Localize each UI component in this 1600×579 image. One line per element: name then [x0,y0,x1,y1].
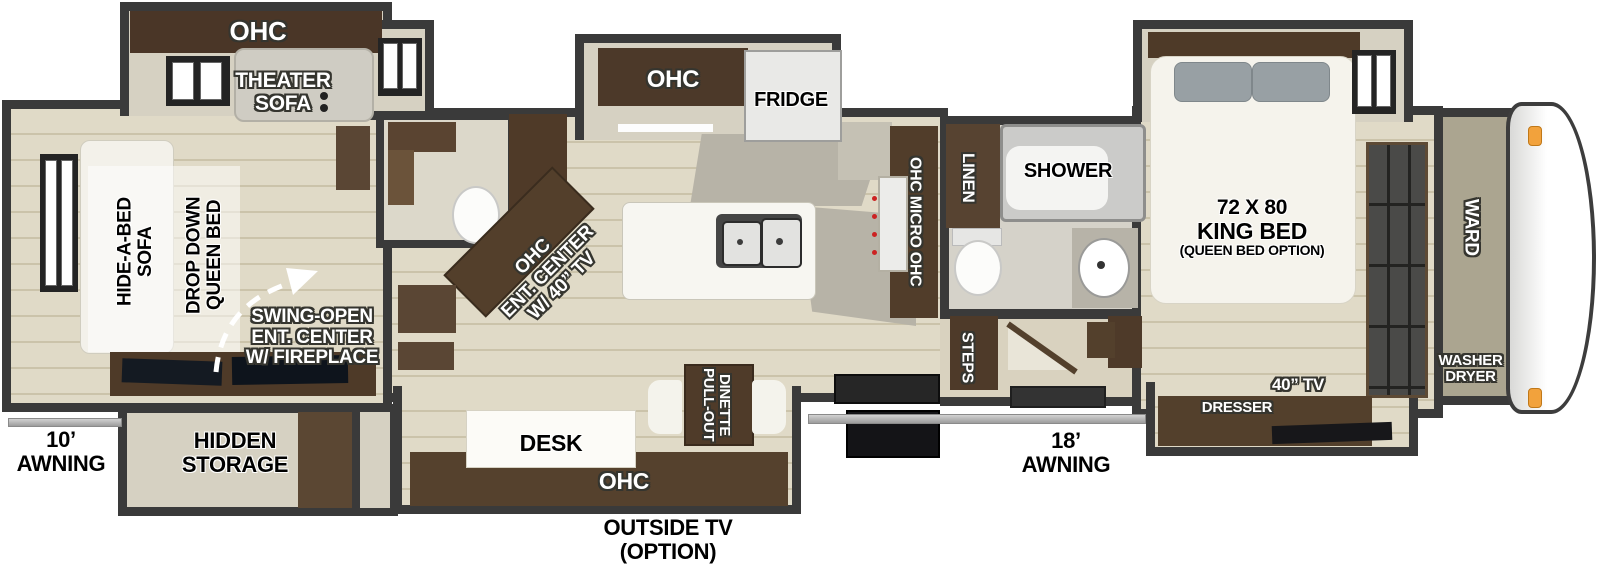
label-pantry-column: OHC MICRO OHC [901,132,929,312]
headboard [1148,32,1360,58]
awning-bar-18ft [808,414,1146,424]
toilet [954,240,1002,296]
king-bed-label-group: 72 X 80 KING BED (QUEEN BED OPTION) [1157,184,1347,270]
label-washer-dryer: WASHER DRYER [1428,350,1513,388]
mirror-closet [1366,142,1428,398]
pillow [1252,62,1330,102]
clearance-light [1528,126,1542,146]
clearance-light [1528,388,1542,408]
front-cap [1506,102,1596,414]
half-bath-window [378,38,422,96]
corner-cabinet [336,126,370,190]
pillow [1174,62,1252,102]
label-bed-type: KING BED [1197,219,1307,243]
counter-patch [838,122,892,180]
label-ohc-rear: OHC [198,16,318,46]
kitchen-side-cabinet [398,285,456,333]
label-linen: LINEN [955,130,981,225]
label-ohc-desk: OHC [564,467,684,495]
label-steps: STEPS [955,321,979,394]
label-10ft-awning: 10’ AWNING [2,426,120,478]
window-pane [172,62,194,100]
label-bed-option: (QUEEN BED OPTION) [1180,243,1325,258]
faucet-dot [776,238,783,245]
kitchen-side-cabinet [398,342,454,370]
label-shower: SHOWER [1003,159,1133,185]
range-indicator-dot [872,196,877,201]
entry-step-well [1010,386,1106,408]
half-bath-counter-side [388,150,414,205]
window-pane [383,43,398,89]
vanity-sink [1078,238,1130,298]
floorplan-canvas: OHC THEATER SOFA HIDE-A-BED SOFA DROP DO… [0,0,1600,579]
label-ohc-kitchen: OHC [613,66,733,94]
half-bath-counter [388,122,456,152]
range-indicator-dot [872,214,877,219]
rear-wall-window [40,154,78,292]
window-pane [1376,55,1391,107]
label-18ft-awning: 18’ AWNING [1001,428,1131,478]
label-fridge: FRIDGE [741,89,841,113]
nightstand [1087,322,1115,358]
label-ward: WARD [1456,180,1484,275]
faucet-dot [1097,261,1105,269]
window-pane [1357,55,1372,107]
dinette-seat [648,380,682,434]
outside-tv-compartment [834,374,940,404]
label-outside-tv: OUTSIDE TV (OPTION) [583,514,753,566]
counter-strip [618,124,713,132]
label-theater-sofa: THEATER SOFA [213,68,353,118]
bedroom-slide-window [1352,50,1396,114]
label-swing-open: SWING-OPEN ENT. CENTER W/ FIREPLACE [222,305,402,371]
rear-corridor-notch [352,404,398,516]
window-pane [402,43,417,89]
range-indicator-dot [872,250,877,255]
faucet-dot [737,239,743,245]
label-desk: DESK [496,429,606,457]
window-pane [45,160,57,286]
range-indicator-dot [872,232,877,237]
label-hidden-storage: HIDDEN STORAGE [155,428,315,478]
label-dinette: PULL-OUT DINETTE [692,366,740,444]
window-pane [61,160,73,286]
label-bedroom-tv: 40” TV [1258,374,1338,396]
label-hide-a-bed: HIDE-A-BED SOFA [110,162,162,342]
label-bed-size: 72 X 80 [1217,197,1287,219]
fireplace-glass [122,358,223,385]
dinette-seat [752,380,786,434]
label-dresser: DRESSER [1197,398,1277,418]
